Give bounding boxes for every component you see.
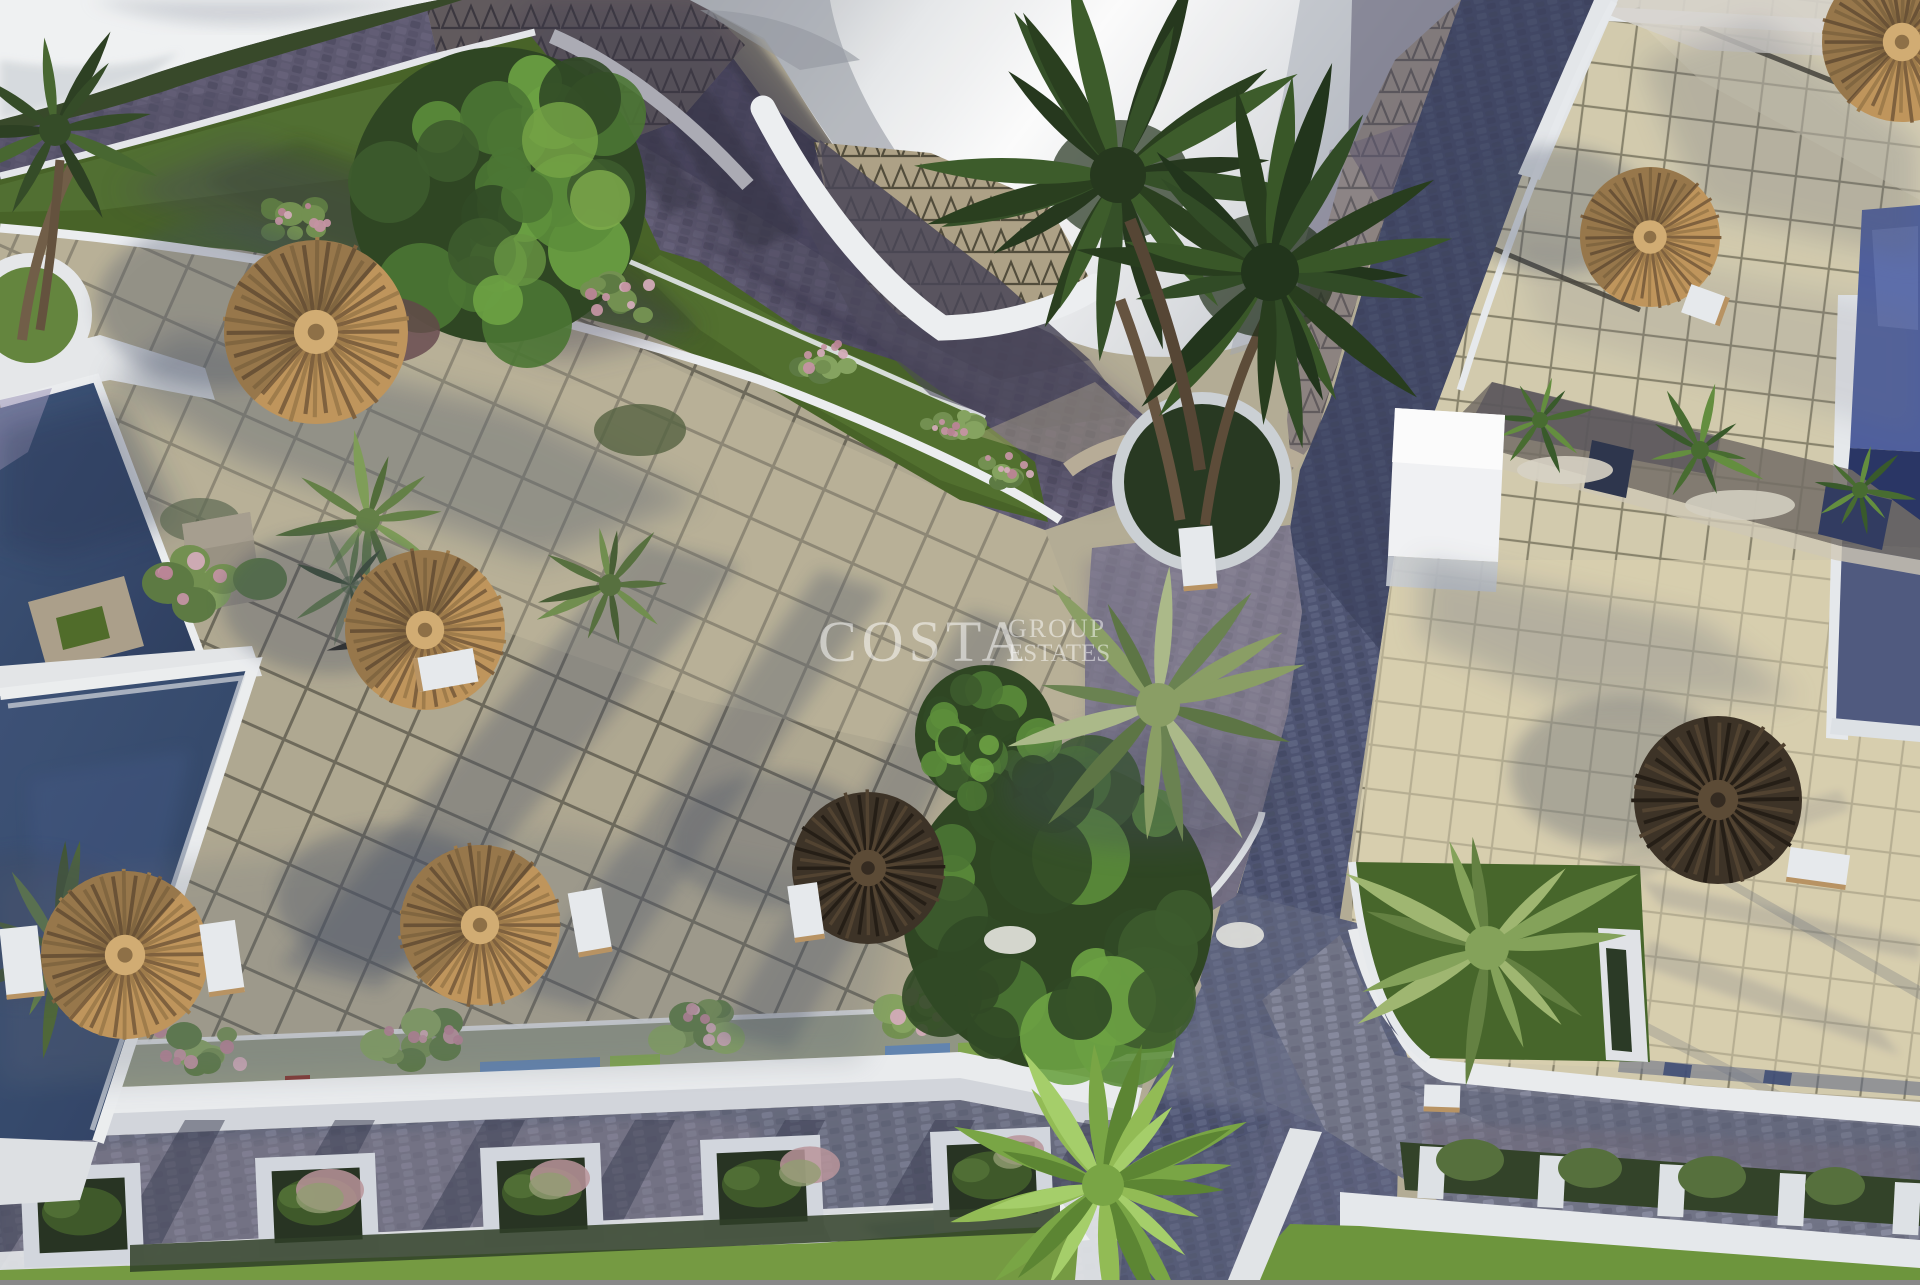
svg-text:ESTATES: ESTATES [1008,640,1110,667]
svg-text:GROUP: GROUP [1008,614,1106,643]
svg-text:COSTA: COSTA [818,609,1029,674]
